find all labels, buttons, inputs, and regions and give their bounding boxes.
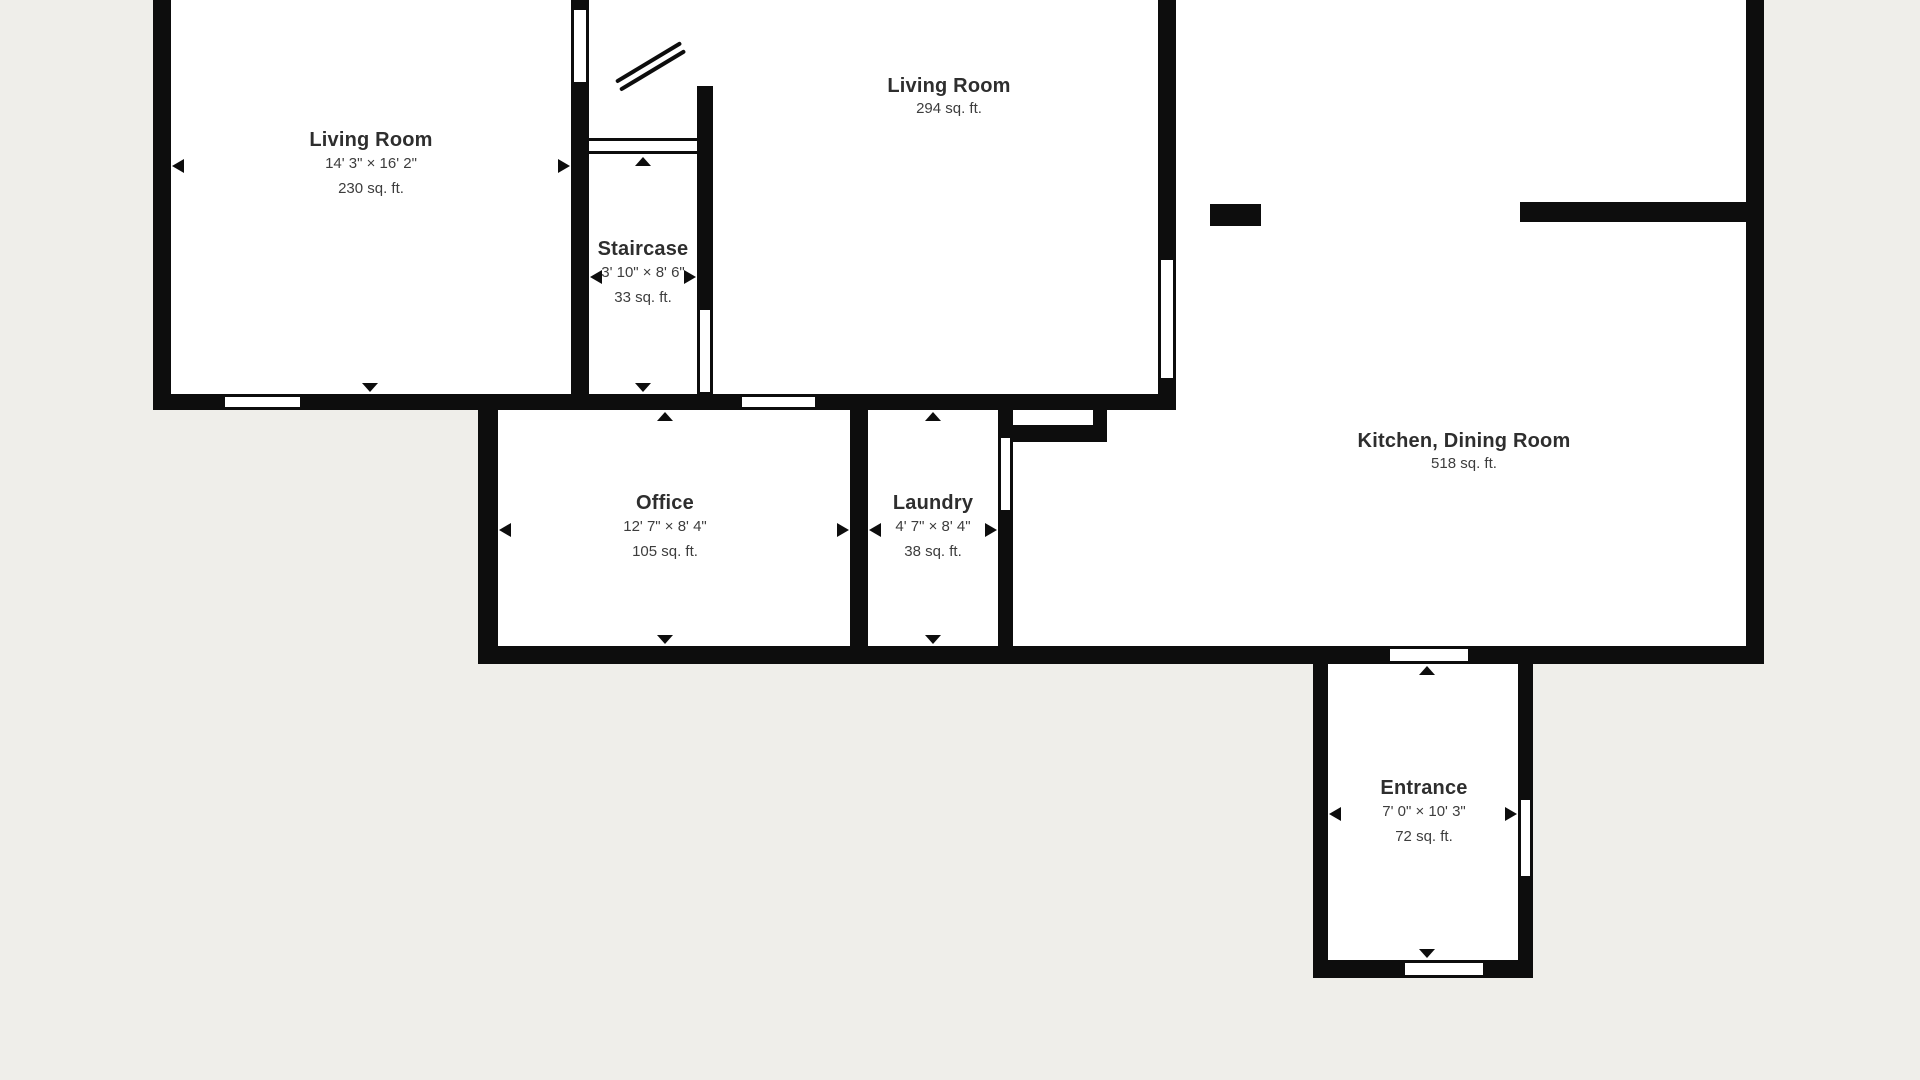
dim-arrow-left-icon xyxy=(1329,807,1341,821)
dim-arrow-up-icon xyxy=(925,412,941,421)
window-entrance-right-wall xyxy=(1521,800,1530,876)
wall-kitchen-stub xyxy=(1210,204,1261,226)
room-label-staircase: Staircase 3' 10" × 8' 6" 33 sq. ft. xyxy=(598,238,689,309)
room-dimensions: 4' 7" × 8' 4" xyxy=(893,514,973,540)
wall-left-outer xyxy=(153,0,171,410)
dim-arrow-down-icon xyxy=(925,635,941,644)
wall-topright-divider xyxy=(1520,202,1764,222)
room-dimensions: 7' 0" × 10' 3" xyxy=(1380,799,1467,825)
room-dimensions: 3' 10" × 8' 6" xyxy=(598,260,689,286)
dim-arrow-down-icon xyxy=(635,383,651,392)
dim-arrow-up-icon xyxy=(1419,666,1435,675)
dim-arrow-up-icon xyxy=(657,412,673,421)
room-dimensions: 12' 7" × 8' 4" xyxy=(623,514,707,540)
dim-arrow-right-icon xyxy=(837,523,849,537)
floor-kitchen xyxy=(1158,0,1764,664)
room-area: 294 sq. ft. xyxy=(887,97,1010,120)
dim-arrow-up-icon xyxy=(635,157,651,166)
room-name: Laundry xyxy=(893,492,973,514)
room-label-kitchen-dining: Kitchen, Dining Room 518 sq. ft. xyxy=(1358,430,1571,475)
room-area: 72 sq. ft. xyxy=(1380,825,1467,848)
room-name: Office xyxy=(623,492,707,514)
door-opening-entrance-top xyxy=(1390,649,1468,661)
dim-arrow-down-icon xyxy=(657,635,673,644)
dim-arrow-left-icon xyxy=(172,159,184,173)
room-label-entrance: Entrance 7' 0" × 10' 3" 72 sq. ft. xyxy=(1380,777,1467,848)
room-area: 38 sq. ft. xyxy=(893,540,973,563)
wall-right-outer xyxy=(1746,0,1764,664)
wall-mid-horizontal xyxy=(153,394,1176,410)
window-kitchen-divider xyxy=(1161,260,1173,378)
window-livingroom1-bottom xyxy=(225,397,300,407)
window-office-top xyxy=(742,397,815,407)
room-area: 33 sq. ft. xyxy=(598,286,689,309)
wall-alcove-cap xyxy=(1093,410,1107,442)
stair-landing xyxy=(589,138,697,154)
floor-plan: Living Room 14' 3" × 16' 2" 230 sq. ft. … xyxy=(0,0,1920,1080)
room-area: 230 sq. ft. xyxy=(309,177,432,200)
window-staircase-left-wall xyxy=(574,10,586,82)
room-label-laundry: Laundry 4' 7" × 8' 4" 38 sq. ft. xyxy=(893,492,973,563)
dim-arrow-down-icon xyxy=(362,383,378,392)
wall-bottom-main xyxy=(478,646,1764,664)
door-opening-entrance-bottom xyxy=(1405,963,1483,975)
dim-arrow-left-icon xyxy=(499,523,511,537)
room-label-living-room-1: Living Room 14' 3" × 16' 2" 230 sq. ft. xyxy=(309,129,432,200)
room-name: Living Room xyxy=(887,75,1010,97)
dim-arrow-right-icon xyxy=(1505,807,1517,821)
window-staircase-right-wall xyxy=(700,310,710,392)
window-laundry-right-wall xyxy=(1001,438,1010,510)
dim-arrow-right-icon xyxy=(558,159,570,173)
room-name: Living Room xyxy=(309,129,432,151)
dim-arrow-right-icon xyxy=(985,523,997,537)
room-name: Staircase xyxy=(598,238,689,260)
wall-laundry-left xyxy=(850,410,868,646)
room-label-living-room-2: Living Room 294 sq. ft. xyxy=(887,75,1010,120)
wall-entrance-left xyxy=(1313,664,1328,978)
room-area: 518 sq. ft. xyxy=(1358,452,1571,475)
room-label-office: Office 12' 7" × 8' 4" 105 sq. ft. xyxy=(623,492,707,563)
room-area: 105 sq. ft. xyxy=(623,540,707,563)
wall-office-left xyxy=(478,410,498,646)
room-dimensions: 14' 3" × 16' 2" xyxy=(309,151,432,177)
dim-arrow-left-icon xyxy=(869,523,881,537)
dim-arrow-down-icon xyxy=(1419,949,1435,958)
room-name: Entrance xyxy=(1380,777,1467,799)
room-name: Kitchen, Dining Room xyxy=(1358,430,1571,452)
